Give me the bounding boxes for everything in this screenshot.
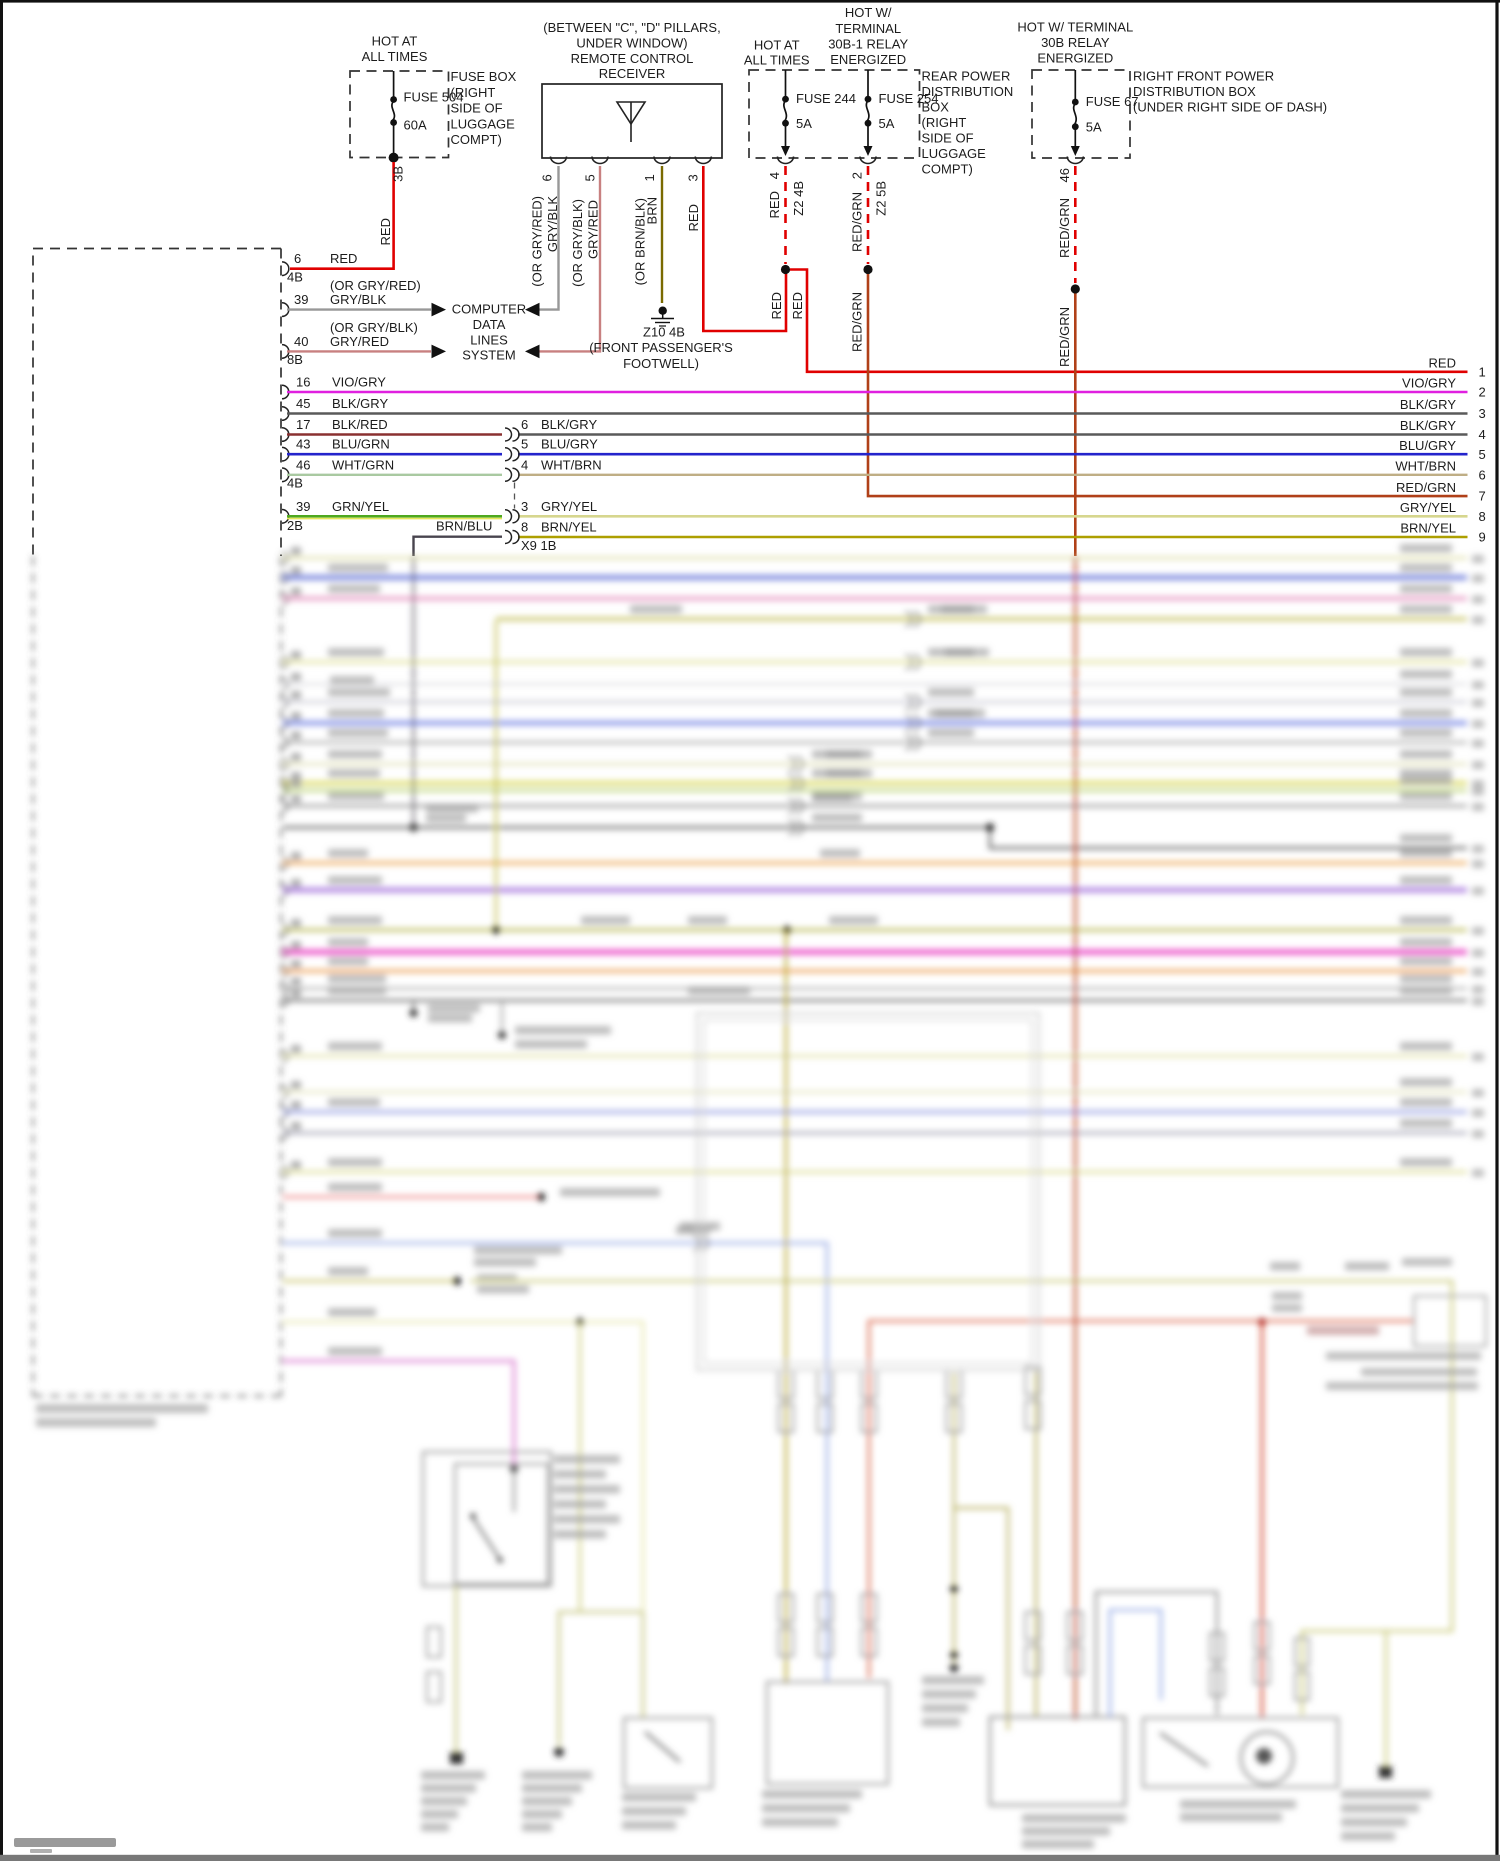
svg-text:39: 39 [294,292,308,307]
svg-text:7: 7 [1479,489,1486,504]
svg-text:GRY/RED: GRY/RED [330,334,389,349]
svg-text:WHT/BRN: WHT/BRN [1395,459,1456,474]
svg-text:BLU/GRY: BLU/GRY [541,437,598,452]
svg-text:RED: RED [790,292,805,319]
svg-text:39: 39 [296,499,310,514]
svg-text:BLK/GRY: BLK/GRY [1400,397,1456,412]
svg-text:COMPT): COMPT) [451,132,502,147]
svg-text:WHT/BRN: WHT/BRN [541,457,602,472]
svg-text:WHT/GRN: WHT/GRN [332,457,394,472]
svg-text:ALL TIMES: ALL TIMES [744,53,810,68]
svg-text:(OR GRY/RED): (OR GRY/RED) [530,196,545,287]
svg-text:6: 6 [521,417,528,432]
svg-text:46: 46 [1057,168,1072,182]
svg-text:4B: 4B [287,475,303,490]
svg-text:2: 2 [1479,385,1486,400]
svg-text:BLK/GRY: BLK/GRY [332,396,388,411]
svg-text:2: 2 [850,172,865,179]
svg-text:COMPT): COMPT) [922,162,973,177]
svg-text:DISTRIBUTION: DISTRIBUTION [922,84,1014,99]
svg-text:BRN: BRN [645,197,660,224]
svg-text:BOX: BOX [922,99,950,114]
svg-text:BLK/GRY: BLK/GRY [1400,418,1456,433]
svg-text:GRY/YEL: GRY/YEL [1400,500,1456,515]
svg-text:(RIGHT: (RIGHT [922,115,967,130]
svg-text:GRN/YEL: GRN/YEL [332,499,389,514]
svg-text:5: 5 [521,437,528,452]
svg-text:5A: 5A [796,116,812,131]
svg-text:(UNDER RIGHT SIDE OF DASH): (UNDER RIGHT SIDE OF DASH) [1133,99,1327,114]
svg-text:Z2 5B: Z2 5B [874,181,889,216]
svg-text:RIGHT FRONT POWER: RIGHT FRONT POWER [1133,68,1274,83]
svg-text:(BETWEEN "C", "D" PILLARS,: (BETWEEN "C", "D" PILLARS, [543,20,720,35]
svg-text:4: 4 [521,457,528,472]
svg-text:RED: RED [330,251,357,266]
svg-text:9: 9 [1479,530,1486,545]
svg-text:3: 3 [686,174,701,181]
svg-text:HOT W/ TERMINAL: HOT W/ TERMINAL [1017,19,1133,34]
svg-text:(OR GRY/BLK): (OR GRY/BLK) [330,320,418,335]
svg-text:HOT AT: HOT AT [372,34,418,49]
svg-text:43: 43 [296,437,310,452]
svg-text:6: 6 [294,251,301,266]
svg-text:GRY/YEL: GRY/YEL [541,499,597,514]
svg-text:BRN/YEL: BRN/YEL [1400,521,1456,536]
svg-text:DISTRIBUTION BOX: DISTRIBUTION BOX [1133,84,1256,99]
svg-text:Z10 4B: Z10 4B [643,325,685,340]
svg-text:RED/GRN: RED/GRN [850,292,865,352]
svg-text:BLU/GRN: BLU/GRN [332,437,390,452]
svg-text:4: 4 [1479,427,1486,442]
svg-text:3: 3 [1479,406,1486,421]
svg-text:TERMINAL: TERMINAL [835,21,901,36]
svg-text:6: 6 [540,174,555,181]
svg-text:30B-1 RELAY: 30B-1 RELAY [828,37,908,52]
svg-text:X9 1B: X9 1B [521,538,556,553]
svg-text:4B: 4B [287,270,303,285]
svg-text:5A: 5A [879,116,895,131]
svg-text:LINES: LINES [470,332,508,347]
svg-text:6: 6 [1479,467,1486,482]
svg-text:HOT AT: HOT AT [754,38,800,53]
svg-text:16: 16 [296,375,310,390]
svg-text:COMPUTER: COMPUTER [452,302,526,317]
svg-text:46: 46 [296,457,310,472]
svg-text:60A: 60A [404,118,427,133]
svg-text:SYSTEM: SYSTEM [462,348,515,363]
svg-text:2B: 2B [287,518,303,533]
svg-text:FOOTWELL): FOOTWELL) [623,356,699,371]
svg-text:BLK/RED: BLK/RED [332,417,388,432]
svg-text:8B: 8B [287,352,303,367]
svg-text:45: 45 [296,396,310,411]
svg-text:RED: RED [1429,356,1456,371]
svg-text:SIDE OF: SIDE OF [922,131,974,146]
svg-text:1: 1 [1479,364,1486,379]
svg-text:RED: RED [378,218,393,245]
svg-text:BRN/YEL: BRN/YEL [541,519,597,534]
svg-text:REAR POWER: REAR POWER [922,68,1011,83]
svg-text:RED: RED [769,292,784,319]
svg-text:VIO/GRY: VIO/GRY [1402,376,1456,391]
svg-text:8: 8 [1479,509,1486,524]
svg-text:(OR GRY/RED): (OR GRY/RED) [330,278,421,293]
svg-text:ENERGIZED: ENERGIZED [830,52,906,67]
svg-text:VIO/GRY: VIO/GRY [332,375,386,390]
svg-text:RECEIVER: RECEIVER [599,66,665,81]
svg-text:FUSE 244: FUSE 244 [796,91,856,106]
svg-text:3: 3 [521,499,528,514]
svg-text:(FRONT PASSENGER'S: (FRONT PASSENGER'S [589,340,733,355]
svg-text:REMOTE CONTROL: REMOTE CONTROL [571,51,694,66]
svg-text:FUSE 67: FUSE 67 [1086,94,1139,109]
svg-text:3B: 3B [391,166,406,182]
svg-text:BLK/GRY: BLK/GRY [541,417,597,432]
svg-text:ENERGIZED: ENERGIZED [1037,50,1113,65]
svg-text:BRN/BLU: BRN/BLU [436,519,492,534]
svg-text:FUSE BOX: FUSE BOX [451,69,517,84]
svg-text:30B RELAY: 30B RELAY [1041,35,1110,50]
svg-text:5: 5 [1479,447,1486,462]
svg-text:(RIGHT: (RIGHT [451,85,496,100]
svg-text:RED: RED [686,204,701,231]
svg-text:8: 8 [521,519,528,534]
svg-text:RED: RED [767,191,782,218]
svg-text:1: 1 [642,174,657,181]
svg-text:4: 4 [767,172,782,179]
svg-text:17: 17 [296,417,310,432]
svg-text:RED/GRN: RED/GRN [850,192,865,252]
svg-text:RED/GRN: RED/GRN [1057,307,1072,367]
svg-text:ALL TIMES: ALL TIMES [362,49,428,64]
svg-text:BLU/GRY: BLU/GRY [1399,438,1456,453]
svg-text:RED/GRN: RED/GRN [1057,198,1072,258]
svg-text:40: 40 [294,334,308,349]
svg-text:UNDER WINDOW): UNDER WINDOW) [576,36,687,51]
svg-text:(OR GRY/BLK): (OR GRY/BLK) [570,199,585,287]
svg-text:SIDE OF: SIDE OF [451,101,503,116]
svg-text:Z2 4B: Z2 4B [791,181,806,216]
svg-text:DATA: DATA [473,317,506,332]
svg-text:HOT W/: HOT W/ [845,5,892,20]
svg-text:LUGGAGE: LUGGAGE [922,146,987,161]
svg-text:5: 5 [583,174,598,181]
svg-text:RED/GRN: RED/GRN [1396,480,1456,495]
svg-text:GRY/RED: GRY/RED [586,200,601,259]
svg-text:LUGGAGE: LUGGAGE [451,116,516,131]
svg-text:GRY/BLK: GRY/BLK [330,292,386,307]
svg-text:5A: 5A [1086,120,1102,135]
